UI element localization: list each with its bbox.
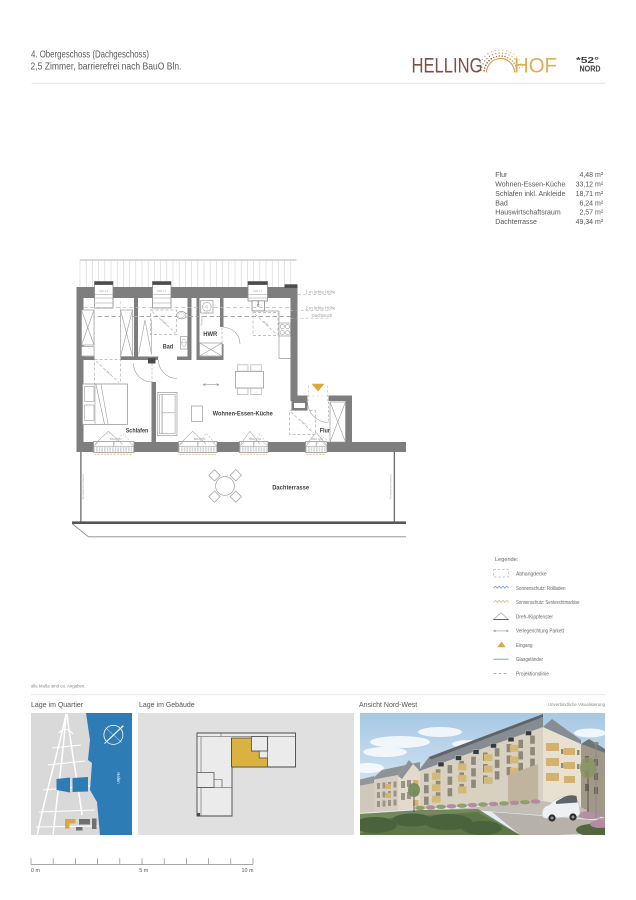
svg-text:NORD: NORD	[580, 63, 601, 73]
svg-text:Verlegerichtung Parkett: Verlegerichtung Parkett	[516, 629, 564, 635]
svg-text:Dreh-/Kippfenster: Dreh-/Kippfenster	[516, 614, 553, 620]
svg-text:Wohnen-Essen-Küche: Wohnen-Essen-Küche	[495, 182, 565, 189]
svg-text:HOF: HOF	[514, 54, 557, 78]
svg-text:33,12 m²: 33,12 m²	[576, 182, 604, 189]
svg-text:BRH 0.60: BRH 0.60	[194, 437, 206, 441]
svg-text:Lage im Quartier: Lage im Quartier	[31, 702, 84, 709]
svg-text:HELLING: HELLING	[412, 54, 483, 78]
svg-text:18,71 m²: 18,71 m²	[576, 191, 604, 198]
svg-text:Bad: Bad	[495, 200, 508, 207]
svg-text:HWR: HWR	[203, 331, 217, 338]
svg-text:2 m lichte Höhe: 2 m lichte Höhe	[306, 305, 336, 310]
svg-text:Bad: Bad	[163, 343, 174, 350]
svg-text:Dachterrasse: Dachterrasse	[272, 484, 309, 491]
svg-text:DFK 1.0: DFK 1.0	[99, 290, 109, 293]
svg-text:Sonnenschutz: Rollladen: Sonnenschutz: Rollladen	[516, 586, 566, 592]
svg-text:Wohnen-Essen-Küche: Wohnen-Essen-Küche	[213, 411, 273, 418]
svg-text:Flur: Flur	[320, 428, 331, 435]
svg-text:2,57 m²: 2,57 m²	[579, 210, 603, 217]
svg-text:Projektionslinie: Projektionslinie	[516, 671, 549, 677]
svg-text:Lage im Gebäude: Lage im Gebäude	[139, 702, 195, 709]
svg-text:DFK 1.0: DFK 1.0	[157, 290, 167, 293]
svg-text:49,34 m²: 49,34 m²	[576, 219, 604, 226]
svg-text:Flur: Flur	[495, 172, 508, 179]
svg-text:Dachbruch: Dachbruch	[312, 313, 333, 318]
svg-text:alle Maße sind ca. Angaben.: alle Maße sind ca. Angaben.	[31, 684, 86, 690]
svg-text:1 m lichte Höhe: 1 m lichte Höhe	[306, 290, 336, 295]
svg-text:BRH 0.60: BRH 0.60	[311, 437, 323, 441]
svg-text:4,48 m²: 4,48 m²	[579, 172, 603, 179]
svg-text:BRH 0.60: BRH 0.60	[249, 437, 261, 441]
svg-text:60x60: 60x60	[262, 320, 270, 328]
svg-text:Terrassentrennwand: Terrassentrennwand	[81, 474, 85, 500]
svg-text:Schlafen: Schlafen	[126, 428, 149, 435]
svg-text:Legende:: Legende:	[495, 557, 519, 563]
svg-text:4. Obergeschoss (Dachgeschoss): 4. Obergeschoss (Dachgeschoss)	[31, 49, 149, 61]
svg-text:Terrassentrennwand: Terrassentrennwand	[389, 474, 393, 500]
svg-text:BRH 0.60: BRH 0.60	[110, 437, 122, 441]
svg-text:Ansicht Nord-West: Ansicht Nord-West	[359, 702, 417, 709]
svg-text:5 m: 5 m	[139, 868, 148, 874]
svg-text:1 m LH: 1 m LH	[298, 417, 307, 426]
svg-text:Dachterrasse: Dachterrasse	[495, 219, 537, 226]
svg-text:Hafen: Hafen	[116, 772, 121, 784]
svg-text:Schacht: Schacht	[200, 316, 204, 326]
svg-text:DFK 1.0: DFK 1.0	[253, 290, 263, 293]
svg-text:Sonnenschutz: Senkrechtmarkise: Sonnenschutz: Senkrechtmarkise	[516, 600, 580, 606]
svg-text:Eingang: Eingang	[516, 643, 533, 649]
svg-text:0 m: 0 m	[31, 868, 40, 874]
svg-text:Unverbindliche Visualisierung: Unverbindliche Visualisierung	[548, 702, 605, 707]
svg-text:6,24 m²: 6,24 m²	[579, 200, 603, 207]
svg-text:2,5 Zimmer, barrierefrei nach: 2,5 Zimmer, barrierefrei nach BauO Bln.	[31, 61, 182, 73]
svg-text:Hauswirtschaftsraum: Hauswirtschaftsraum	[495, 210, 561, 217]
svg-text:Schlafen inkl. Ankleide: Schlafen inkl. Ankleide	[495, 191, 565, 198]
svg-text:Glasgeländer: Glasgeländer	[516, 657, 543, 663]
svg-text:10 m: 10 m	[242, 868, 254, 874]
svg-text:90x90: 90x90	[160, 318, 168, 326]
svg-text:Abhangdecke: Abhangdecke	[516, 572, 547, 578]
